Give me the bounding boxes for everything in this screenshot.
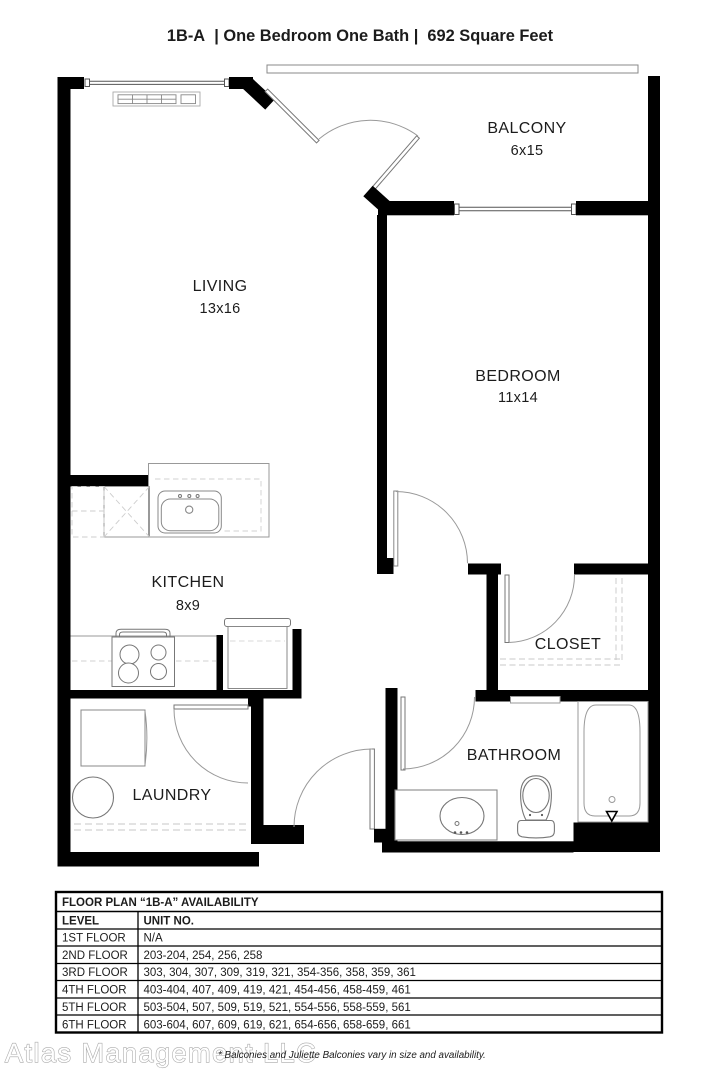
svg-text:203-204, 254, 256, 258: 203-204, 254, 256, 258 — [144, 950, 263, 962]
svg-text:* Balconies and Juliette Balco: * Balconies and Juliette Balconies vary … — [218, 1050, 486, 1061]
svg-text:6x15: 6x15 — [511, 143, 544, 159]
svg-text:LAUNDRY: LAUNDRY — [133, 787, 212, 804]
svg-text:303, 304, 307, 309, 319, 321,: 303, 304, 307, 309, 319, 321, 354-356, 3… — [144, 967, 416, 979]
svg-text:503-504, 507, 509, 519, 521, 5: 503-504, 507, 509, 519, 521, 554-556, 55… — [144, 1002, 411, 1014]
svg-text:LIVING: LIVING — [193, 278, 248, 295]
svg-text:1B-A | One Bedroom One Bath |: 1B-A | One Bedroom One Bath | 692 Square… — [167, 27, 554, 45]
svg-text:8x9: 8x9 — [176, 598, 200, 614]
svg-text:11x14: 11x14 — [498, 390, 538, 406]
svg-text:BALCONY: BALCONY — [487, 120, 566, 137]
svg-text:603-604, 607, 609, 619, 621, 6: 603-604, 607, 609, 619, 621, 654-656, 65… — [144, 1020, 411, 1032]
svg-text:LEVEL: LEVEL — [62, 916, 99, 928]
svg-text:N/A: N/A — [144, 933, 164, 945]
svg-text:2ND FLOOR: 2ND FLOOR — [62, 950, 128, 962]
svg-text:BATHROOM: BATHROOM — [467, 747, 561, 764]
svg-text:1ST FLOOR: 1ST FLOOR — [62, 933, 126, 945]
svg-text:6TH FLOOR: 6TH FLOOR — [62, 1020, 127, 1032]
svg-text:403-404, 407, 409, 419, 421, 4: 403-404, 407, 409, 419, 421, 454-456, 45… — [144, 985, 411, 997]
svg-text:3RD FLOOR: 3RD FLOOR — [62, 967, 128, 979]
svg-text:KITCHEN: KITCHEN — [151, 574, 224, 591]
svg-text:BEDROOM: BEDROOM — [475, 368, 560, 385]
svg-text:5TH FLOOR: 5TH FLOOR — [62, 1002, 127, 1014]
svg-text:13x16: 13x16 — [199, 301, 240, 317]
svg-text:UNIT NO.: UNIT NO. — [144, 916, 194, 928]
svg-text:4TH FLOOR: 4TH FLOOR — [62, 985, 127, 997]
svg-text:CLOSET: CLOSET — [535, 636, 601, 653]
svg-text:FLOOR PLAN “1B-A” AVAILABILITY: FLOOR PLAN “1B-A” AVAILABILITY — [62, 897, 259, 909]
